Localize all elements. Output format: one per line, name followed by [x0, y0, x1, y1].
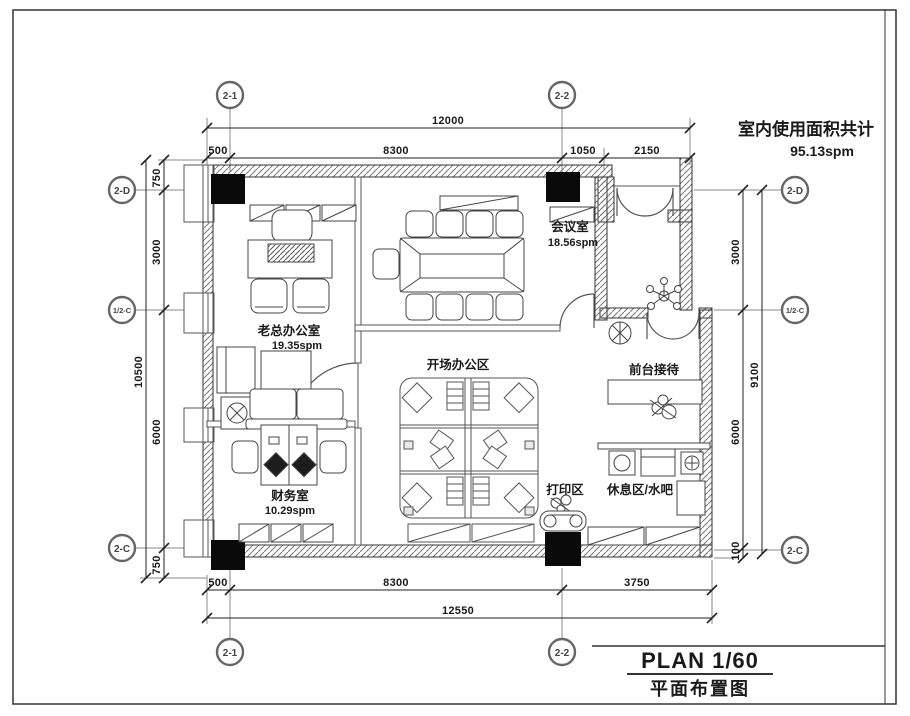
counter: [598, 443, 710, 449]
svg-text:2-C: 2-C: [114, 544, 130, 555]
room-label-open-office: 开场办公区: [427, 357, 490, 372]
cabinet: [677, 481, 705, 515]
room-label-rest-area: 休息区/水吧: [606, 482, 673, 497]
meeting-room-door: [560, 294, 594, 328]
grid-bubble-half-C-right: 1/2-C: [782, 297, 808, 323]
plant-pinwheel-icon: [609, 322, 631, 344]
conference-table: [400, 238, 524, 292]
svg-text:1/2-C: 1/2-C: [113, 306, 132, 315]
room-label-meeting-room: 会议室: [551, 219, 589, 234]
dim-right-100: 100: [730, 541, 742, 560]
svg-text:2-2: 2-2: [555, 648, 570, 659]
phone-icon: [297, 437, 307, 444]
dim-left-6000: 6000: [151, 419, 163, 445]
dim-bottom-3750: 3750: [624, 577, 650, 589]
window: [184, 520, 214, 557]
bar-table: [641, 449, 675, 476]
dim-top-overall: 12000: [432, 115, 464, 127]
room-area-finance-room: 10.29spm: [265, 505, 315, 517]
column: [546, 172, 580, 202]
dim-left-3000: 3000: [151, 239, 163, 265]
low-cabinets: [588, 527, 700, 545]
grid-bubble-2-C-left: 2-C: [109, 535, 135, 561]
grid-bubble-2-C-right: 2-C: [782, 537, 808, 563]
coffee-table: [261, 351, 311, 389]
guest-chair: [320, 441, 346, 473]
reception-desk: [608, 380, 702, 404]
dim-right-6000: 6000: [730, 419, 742, 445]
column: [211, 540, 245, 570]
svg-text:2-1: 2-1: [223, 91, 238, 102]
floor-plan-drawing: 12000 500 8300 1050 2150 500 8300 3750 1…: [0, 0, 910, 716]
room-area-boss-office: 19.35spm: [272, 340, 322, 352]
room-label-reception: 前台接待: [629, 362, 680, 377]
plant-icon: [551, 495, 571, 513]
grid-bubble-2-2-bottom: 2-2: [549, 639, 575, 665]
room-label-boss-office: 老总办公室: [257, 323, 321, 338]
grid-bubble-2-D-left: 2-D: [109, 177, 135, 203]
grid-bubble-2-D-right: 2-D: [782, 177, 808, 203]
boss-desk: [248, 240, 332, 278]
area-note-title: 室内使用面积共计: [738, 119, 874, 139]
column: [211, 174, 245, 204]
window: [184, 293, 214, 333]
low-cabinets: [408, 524, 534, 542]
dim-bottom-overall: 12550: [442, 605, 474, 617]
guest-chair: [251, 279, 287, 313]
dim-top-2150: 2150: [634, 145, 660, 157]
open-office-furniture: [400, 378, 538, 542]
sink-icon: [609, 451, 635, 475]
svg-text:2-2: 2-2: [555, 91, 570, 102]
finance-room-furniture: [232, 425, 346, 542]
stove-icon: [681, 452, 703, 474]
low-cabinets: [239, 524, 333, 542]
meeting-room-furniture: [373, 196, 594, 320]
bookcase: [217, 347, 255, 393]
room-label-print-area: 打印区: [546, 482, 584, 497]
grid-bubble-2-2-top: 2-2: [549, 82, 575, 108]
lobby-flower-icon: [647, 278, 682, 310]
printer-icon: [540, 511, 586, 531]
dim-right-3000: 3000: [730, 239, 742, 265]
svg-text:2-C: 2-C: [787, 546, 803, 557]
grid-bubble-half-C-left: 1/2-C: [109, 297, 135, 323]
dim-top-500: 500: [208, 145, 227, 157]
room-label-finance-room: 财务室: [270, 488, 309, 503]
svg-text:2-1: 2-1: [223, 648, 238, 659]
reception-double-door: [647, 313, 699, 339]
phone-icon: [269, 437, 279, 444]
svg-text:1/2-C: 1/2-C: [786, 306, 805, 315]
grid-bubble-2-1-bottom: 2-1: [217, 639, 243, 665]
column: [545, 532, 581, 566]
plan-title: PLAN 1/60: [641, 648, 759, 673]
executive-chair: [272, 210, 312, 242]
drawing-sheet: 12000 500 8300 1050 2150 500 8300 3750 1…: [0, 0, 910, 716]
boss-office-furniture: [217, 205, 356, 429]
area-note-value: 95.13spm: [790, 143, 854, 159]
svg-text:2-D: 2-D: [114, 186, 130, 197]
sofa: [246, 389, 347, 429]
dim-top-1050: 1050: [570, 145, 596, 157]
dim-left-750b: 750: [151, 555, 163, 574]
partition-spine: [465, 378, 471, 518]
print-area-furniture: [540, 495, 586, 531]
room-area-meeting-room: 18.56spm: [548, 237, 598, 249]
dim-bottom-8300: 8300: [383, 577, 409, 589]
guest-chair: [232, 441, 258, 473]
grid-bubble-2-1-top: 2-1: [217, 82, 243, 108]
dim-left-750a: 750: [151, 168, 163, 187]
plan-subtitle: 平面布置图: [650, 678, 750, 699]
dim-bottom-500: 500: [208, 577, 227, 589]
svg-text:2-D: 2-D: [787, 186, 803, 197]
guest-chair: [293, 279, 329, 313]
dim-top-8300: 8300: [383, 145, 409, 157]
dim-right-overall: 9100: [749, 362, 761, 388]
window: [184, 165, 214, 222]
dim-left-overall: 10500: [133, 356, 145, 388]
